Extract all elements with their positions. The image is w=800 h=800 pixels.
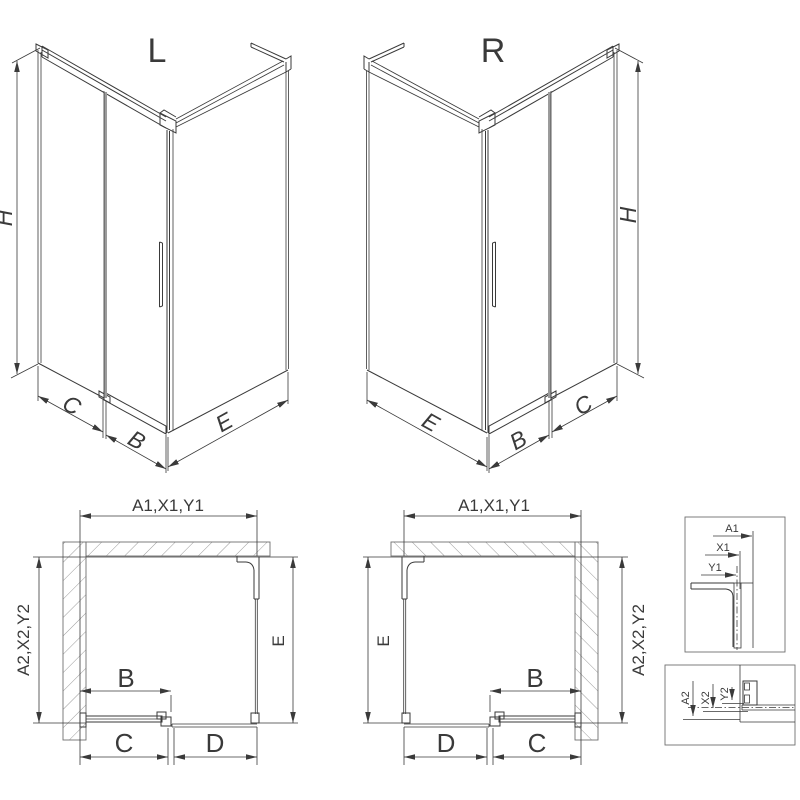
plan-left-dim-top-label: A1,X1,Y1 — [132, 496, 204, 515]
iso-left-dim-height-label: H — [0, 209, 17, 226]
technical-drawing-canvas: L H C B E R H C B E — [0, 0, 800, 800]
iso-right-title: R — [481, 32, 506, 70]
plan-left-dim-door-label: B — [117, 663, 134, 693]
plan-left-dim-left-label: A2,X2,Y2 — [14, 604, 33, 676]
detail-y1-label: Y1 — [708, 562, 721, 574]
plan-right-dim-left-label: E — [374, 635, 393, 646]
plan-right-dim-bottom-right-label: C — [528, 728, 547, 758]
iso-right-dim-height-label: H — [615, 206, 641, 223]
plan-right-dim-right-label: A2,X2,Y2 — [629, 604, 648, 676]
detail-y2-label: Y2 — [719, 687, 731, 700]
plan-left-dim-bottom-right-label: D — [206, 728, 225, 758]
plan-left-dim-bottom-left-label: C — [115, 728, 134, 758]
plan-left-dim-right-label: E — [269, 635, 288, 646]
detail-x1-label: X1 — [716, 542, 729, 554]
plan-right-dim-door-label: B — [526, 663, 543, 693]
detail-x2-label: X2 — [700, 691, 712, 704]
detail-a1-label: A1 — [725, 523, 738, 535]
plan-right-dim-top-label: A1,X1,Y1 — [458, 496, 530, 515]
iso-left-title: L — [148, 32, 167, 70]
detail-a2-label: A2 — [680, 691, 692, 704]
plan-right-dim-bottom-left-label: D — [437, 728, 456, 758]
